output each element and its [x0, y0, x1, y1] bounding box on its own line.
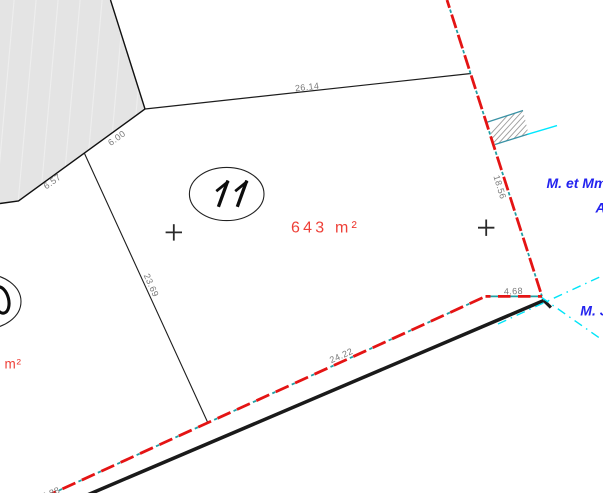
- svg-text:AU: AU: [595, 200, 603, 216]
- svg-text:4.68: 4.68: [504, 286, 523, 297]
- svg-text:m²: m²: [5, 357, 22, 372]
- svg-text:M. et Mme: M. et Mme: [547, 175, 603, 191]
- svg-text:18.56: 18.56: [492, 174, 509, 200]
- svg-text:7.88: 7.88: [40, 485, 62, 493]
- svg-text:643 m²: 643 m²: [291, 219, 360, 236]
- svg-text:26.14: 26.14: [294, 81, 320, 94]
- svg-text:M. Ja: M. Ja: [580, 303, 603, 319]
